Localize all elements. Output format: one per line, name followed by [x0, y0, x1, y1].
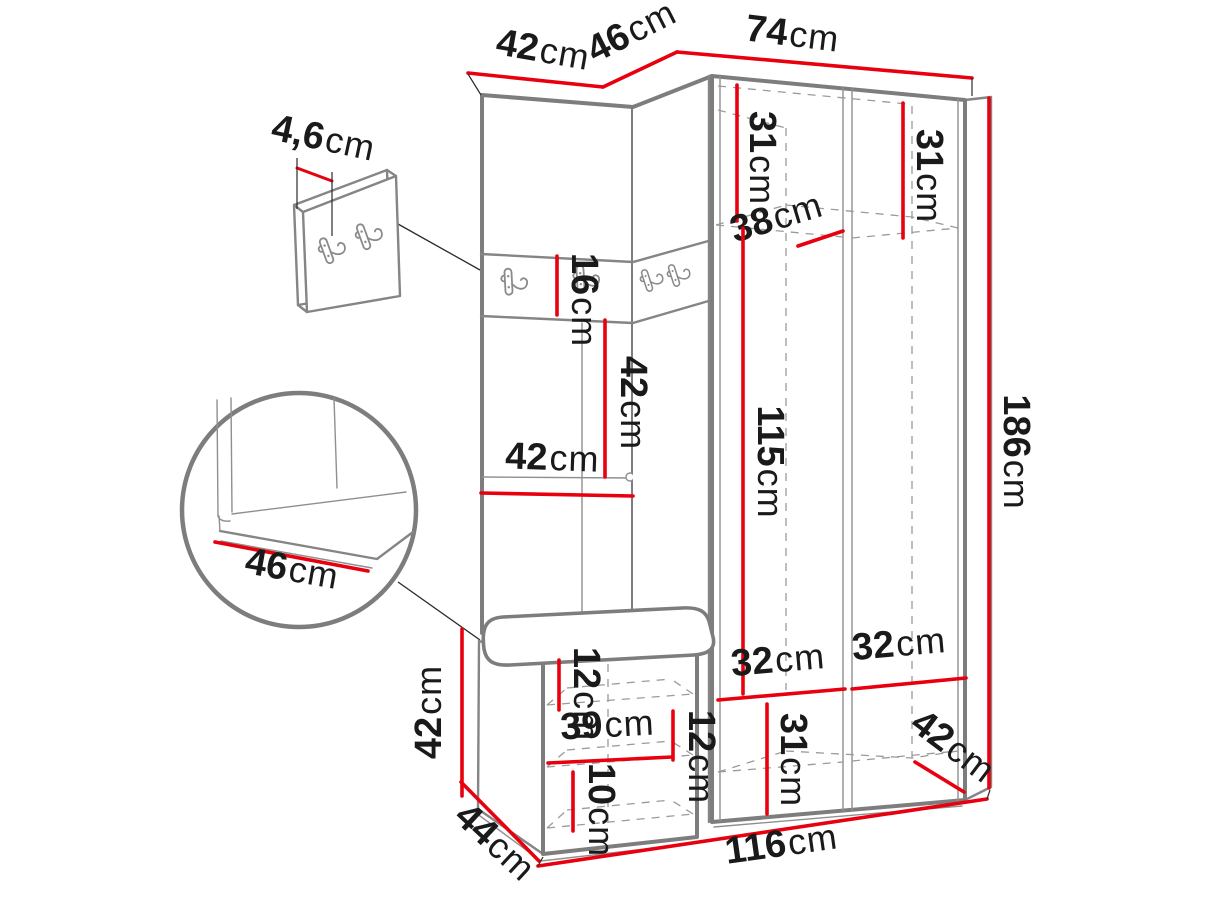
left-unit-front-face [482, 95, 633, 660]
seat-corner-detail-circle [182, 393, 416, 627]
dim-line [297, 168, 332, 181]
dim-label: 31cm [741, 111, 783, 205]
dim-label: 10cm [580, 763, 622, 857]
dim-label: 115cm [749, 405, 791, 518]
dim-hook-strip-height: 16cm [557, 253, 605, 347]
dim-label: 116cm [722, 815, 840, 872]
detail-seat-left-edge [219, 516, 220, 531]
dim-label: 39cm [559, 702, 655, 749]
hook-panel-detail [294, 170, 400, 312]
diagram-canvas: 42cm 46cm 74cm 4,6cm 31cm 31cm 38cm 16cm… [0, 0, 1214, 911]
dim-label: 186cm [995, 394, 1037, 509]
dim-label: 4,6cm [268, 107, 379, 170]
padded-back-button [626, 473, 634, 481]
dim-top-corner-width: 46cm [580, 0, 683, 87]
detail-back-seam [231, 398, 232, 512]
dim-total-height: 186cm [989, 98, 1037, 788]
wardrobe-side-outline [965, 97, 991, 800]
dim-label: 12cm [680, 710, 722, 804]
seat-detail-pointer-line [398, 582, 480, 640]
dim-label: 16cm [563, 253, 605, 347]
dim-bench-height: 42cm [408, 629, 462, 796]
dim-lower-compartment-height: 31cm [767, 704, 814, 814]
dim-label: 31cm [908, 129, 950, 223]
dim-label: 31cm [772, 713, 814, 807]
furniture-dimension-diagram: 42cm 46cm 74cm 4,6cm 31cm 31cm 38cm 16cm… [0, 0, 1214, 911]
dim-label: 42cm [408, 665, 450, 759]
dim-label: 74cm [743, 8, 842, 61]
dim-label: 42cm [612, 356, 654, 450]
dim-label: 42cm [493, 21, 593, 79]
detail-back-seam [217, 400, 218, 516]
dim-label: 46cm [580, 0, 683, 71]
dim-extension [468, 74, 481, 95]
dim-label: 42cm [505, 435, 601, 480]
left-tall-unit [481, 95, 634, 660]
dim-extension [987, 790, 990, 799]
